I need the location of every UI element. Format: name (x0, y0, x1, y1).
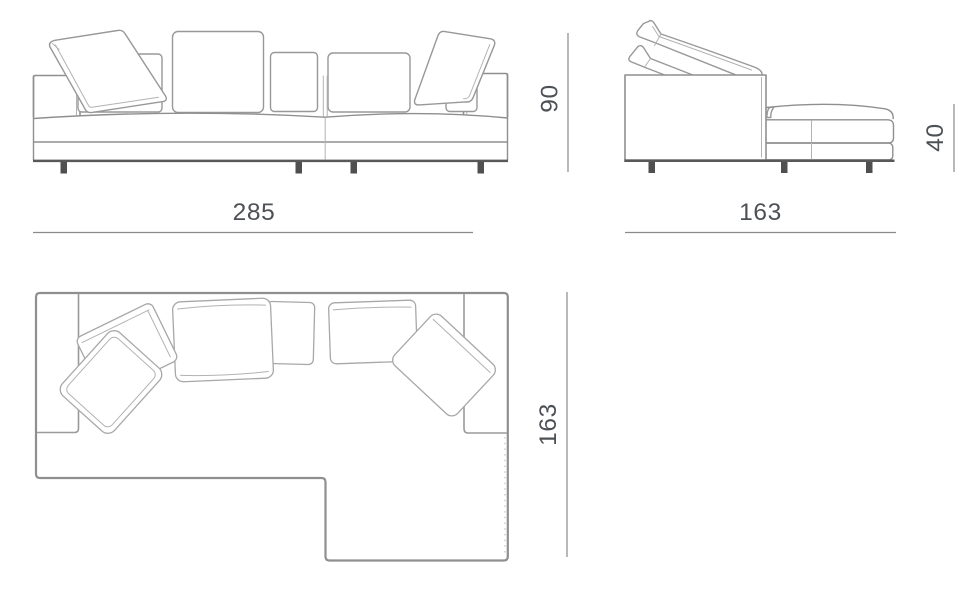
top-plan-view (36, 293, 508, 561)
dimension-label-front-width: 285 (233, 199, 276, 226)
dimension-label-plan-depth: 163 (535, 403, 562, 446)
seat-platform-fill (34, 113, 508, 160)
sofa-leg (781, 162, 788, 173)
sofa-leg (478, 162, 485, 174)
chaise-cushion-front (767, 120, 894, 143)
chaise-cushion-top-curve (767, 104, 893, 118)
center-back-cushion (173, 32, 264, 113)
chaise-base (767, 143, 893, 160)
sofa-leg (649, 162, 656, 173)
dimension-label-chaise-height: 40 (922, 123, 949, 151)
dimension-label-side-depth: 163 (739, 199, 782, 226)
sofa-three-view-drawing: 285 90 163 40 163 (0, 0, 978, 596)
side-arm-panel (625, 75, 766, 160)
chaise-cushion-corner (767, 107, 774, 117)
side-elevation-view (624, 21, 894, 173)
side-back-cushion-rear (637, 21, 762, 83)
sofa-leg (61, 162, 68, 174)
back-cushion (271, 53, 318, 112)
front-elevation-view (33, 30, 508, 173)
sofa-leg (351, 162, 358, 174)
sofa-leg (866, 162, 873, 173)
back-cushion (328, 53, 410, 112)
plan-cushion-center (172, 298, 273, 382)
technical-drawing-page: 285 90 163 40 163 (0, 0, 978, 596)
dimension-label-front-height: 90 (537, 84, 564, 112)
sofa-leg (296, 162, 303, 174)
